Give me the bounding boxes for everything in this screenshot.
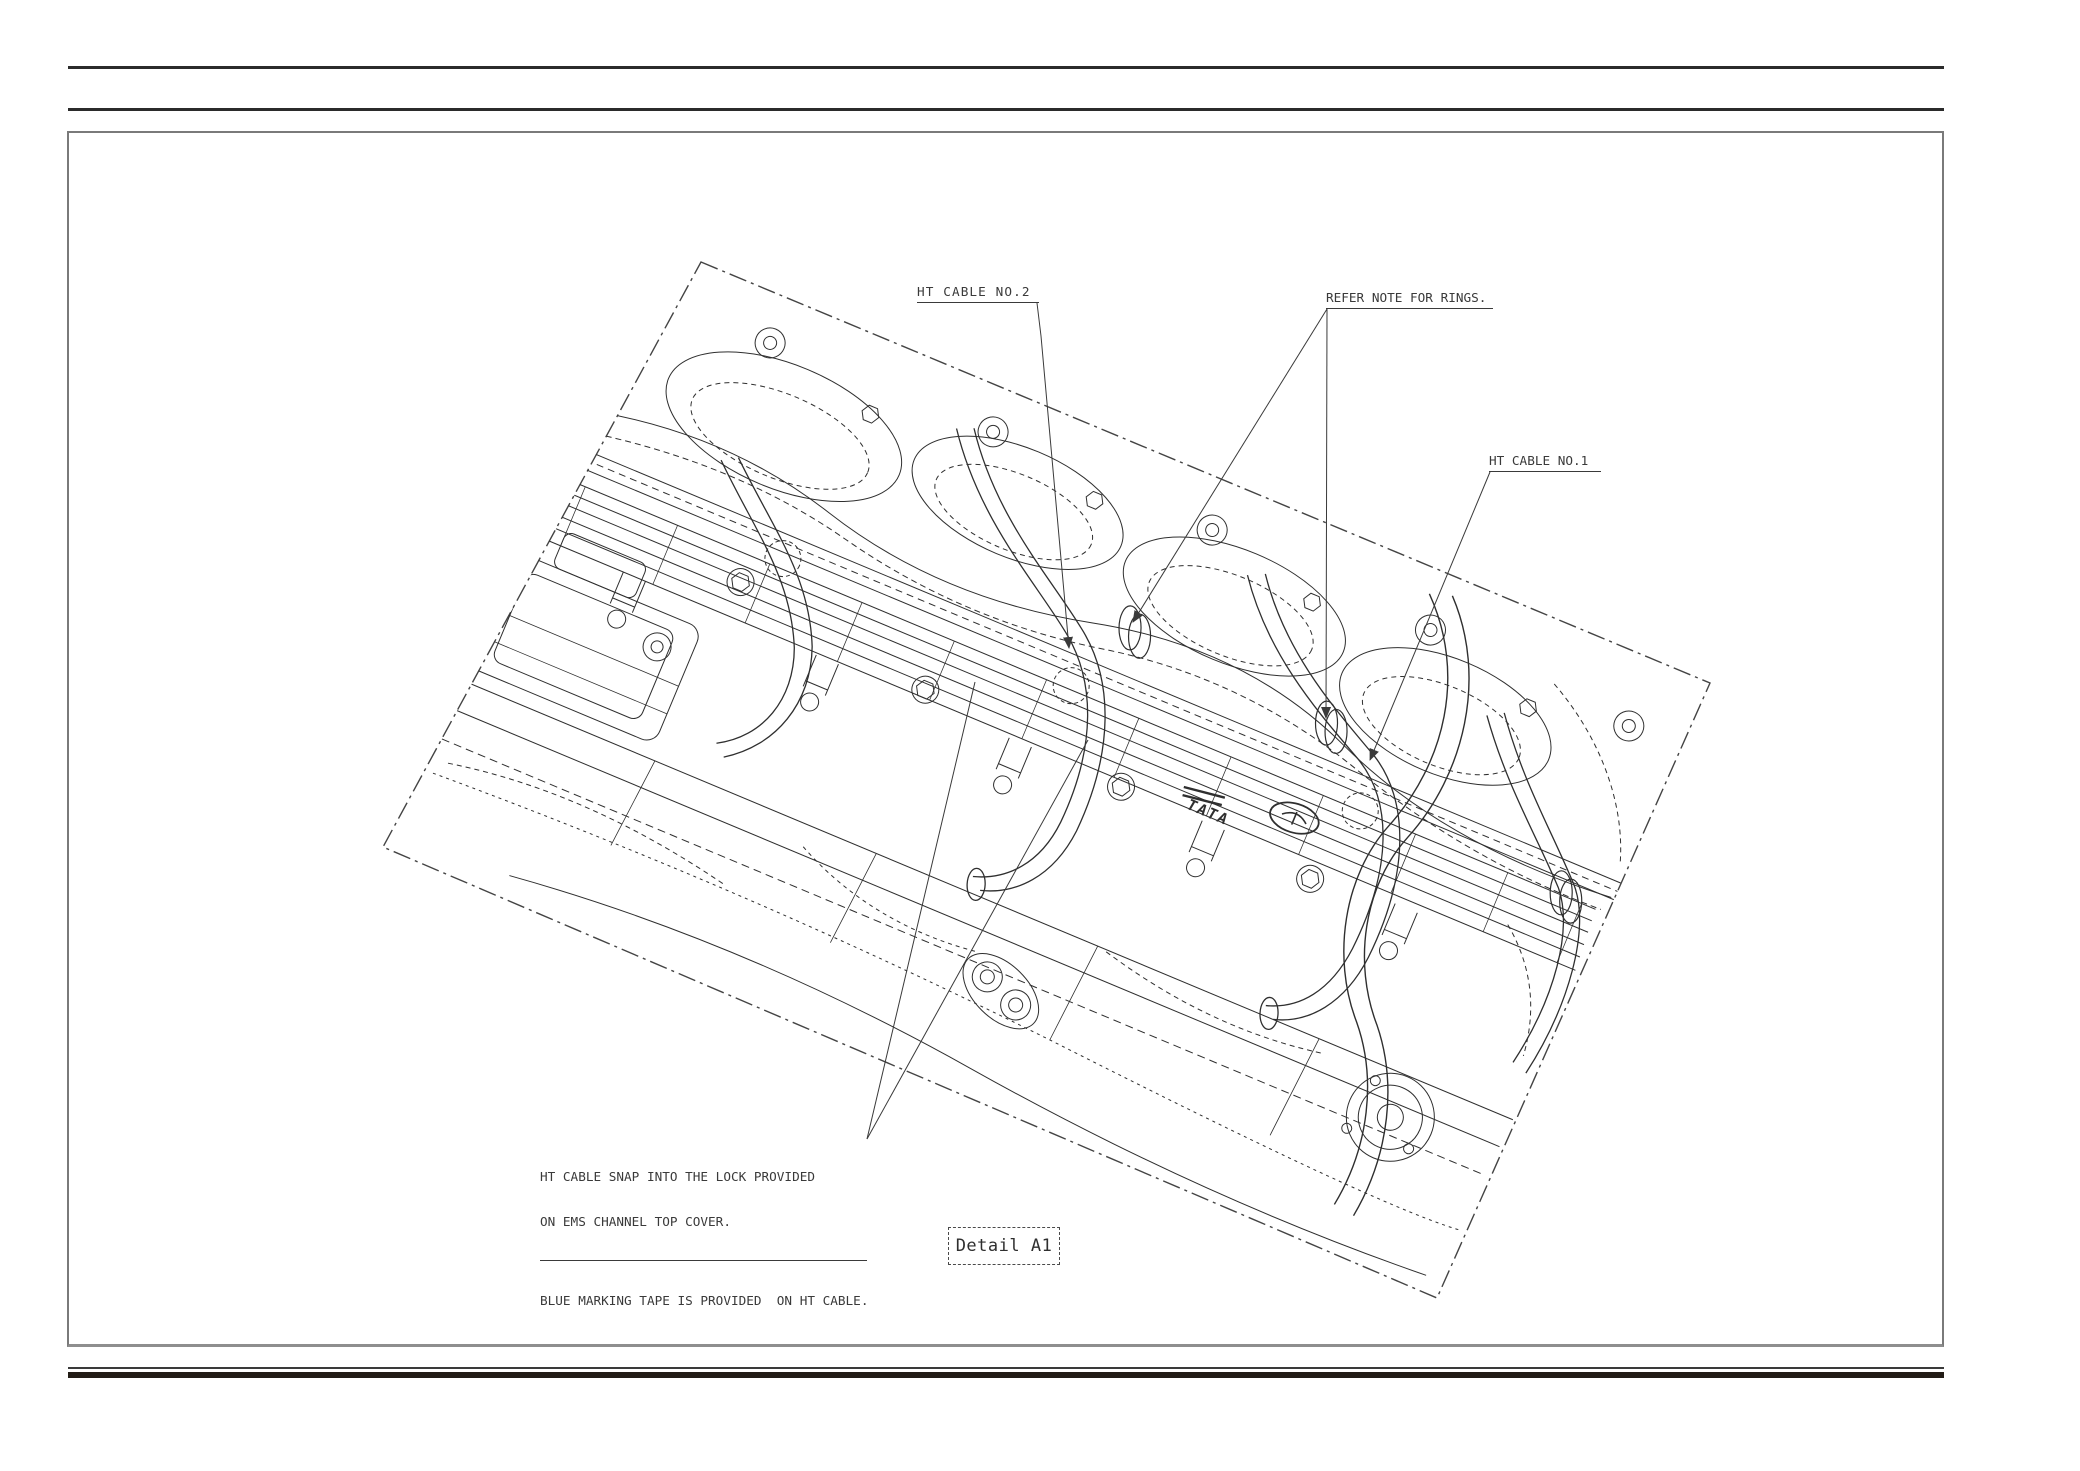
- leader-rings-diagonal: [1133, 309, 1327, 622]
- bracket-two-holes: [936, 932, 1066, 1051]
- hose: [1197, 587, 1591, 1216]
- cover-edges: [547, 437, 1622, 900]
- leader-rings-vertical: [1326, 309, 1327, 718]
- leader-ht-cable-no1: [1370, 472, 1490, 760]
- leader-note-b: [867, 740, 1088, 1139]
- engine-badge: TATA: [1175, 758, 1325, 862]
- leader-note-a: [867, 682, 975, 1139]
- refer-note-rings-label: REFER NOTE FOR RINGS.: [1326, 291, 1493, 309]
- ignition-coil: [465, 515, 717, 744]
- cover-bolt-bosses: [736, 320, 1658, 760]
- note-line-1: HT CABLE SNAP INTO THE LOCK PROVIDED: [540, 1169, 867, 1184]
- injectors: [599, 572, 1420, 964]
- note-block: HT CABLE SNAP INTO THE LOCK PROVIDED ON …: [540, 1109, 868, 1338]
- note-line-2: ON EMS CHANNEL TOP COVER.: [540, 1214, 867, 1229]
- ht-cable-no1-label: HT CABLE NO.1: [1489, 454, 1601, 472]
- note-line-3: BLUE MARKING TAPE IS PROVIDED ON HT CABL…: [540, 1293, 868, 1308]
- detail-view-box: Detail A1: [948, 1227, 1060, 1265]
- fuel-rail: [528, 447, 1611, 970]
- note-underlined: HT CABLE SNAP INTO THE LOCK PROVIDED ON …: [540, 1139, 867, 1261]
- ht-cable-no2-label: HT CABLE NO.2: [917, 285, 1039, 303]
- leader-lines: [867, 303, 1490, 1139]
- detail-view-label: Detail A1: [956, 1236, 1053, 1256]
- round-housing: [1333, 1060, 1448, 1175]
- drawing-page: TATA: [0, 0, 2080, 1471]
